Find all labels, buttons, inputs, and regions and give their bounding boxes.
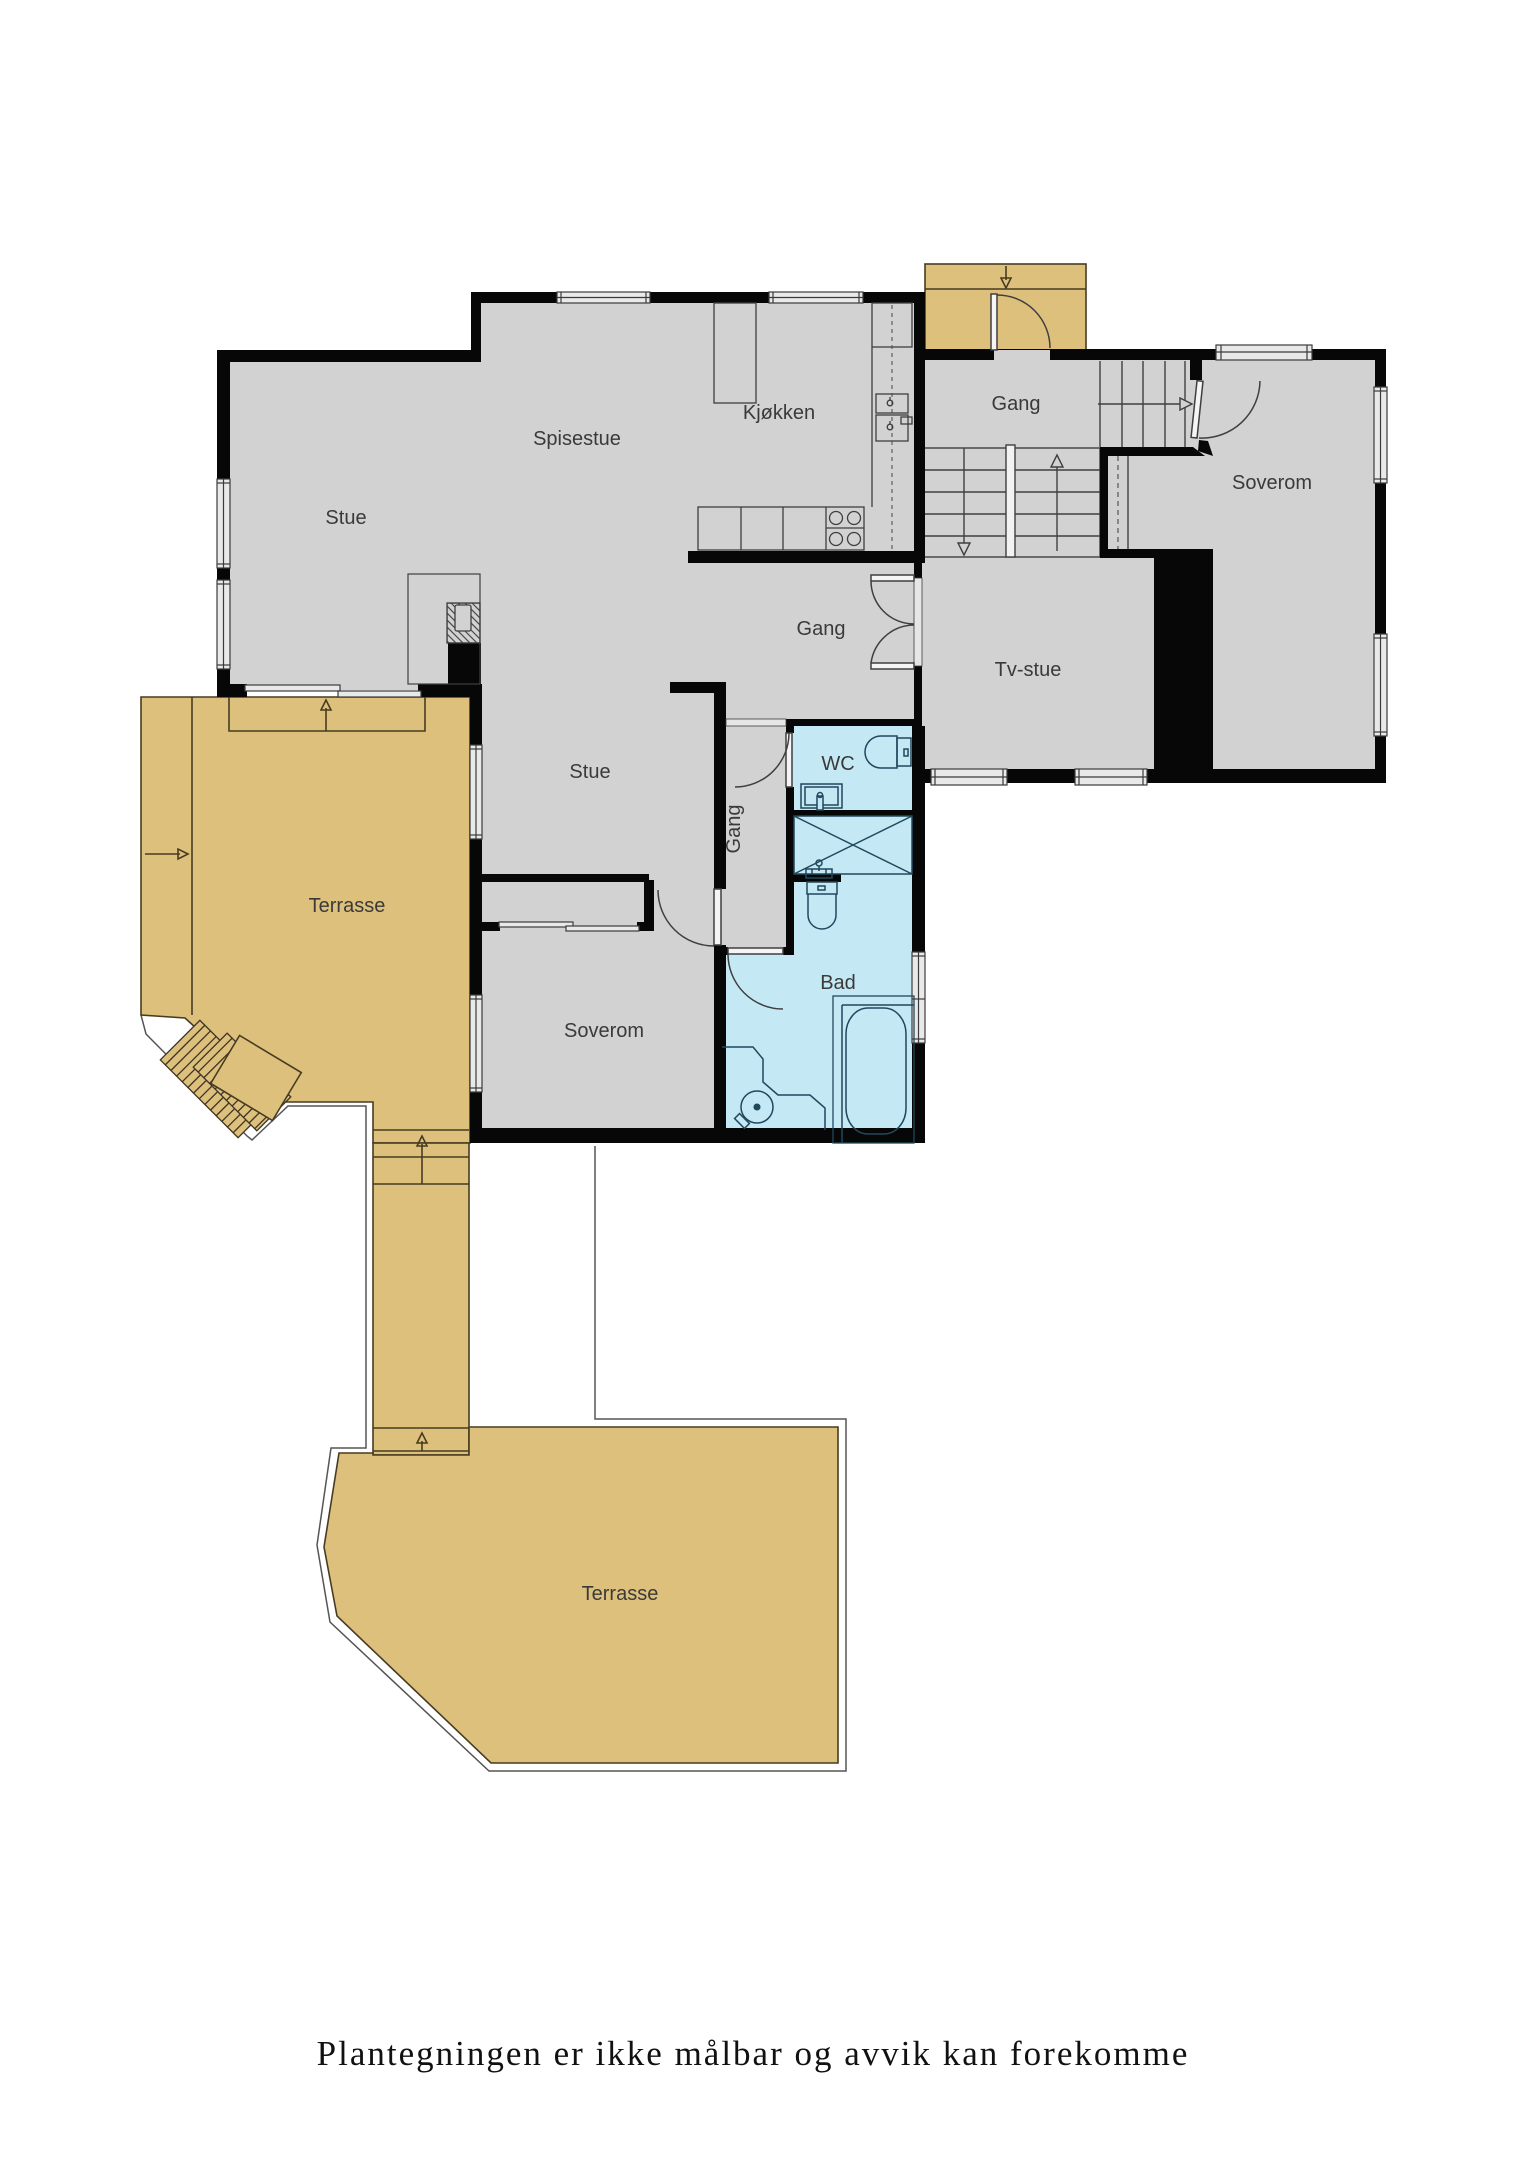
svg-text:Soverom: Soverom bbox=[564, 1020, 644, 1042]
svg-text:Plantegningen er ikke målbar o: Plantegningen er ikke målbar og avvik ka… bbox=[317, 2034, 1190, 2073]
svg-text:Spisestue: Spisestue bbox=[533, 428, 621, 450]
svg-text:Bad: Bad bbox=[820, 972, 856, 994]
svg-text:Stue: Stue bbox=[325, 507, 366, 529]
svg-text:Stue: Stue bbox=[569, 761, 610, 783]
svg-text:Gang: Gang bbox=[723, 805, 745, 854]
svg-text:Gang: Gang bbox=[797, 618, 846, 640]
svg-text:Soverom: Soverom bbox=[1232, 472, 1312, 494]
svg-text:Terrasse: Terrasse bbox=[582, 1583, 659, 1605]
svg-text:Terrasse: Terrasse bbox=[309, 895, 386, 917]
svg-text:Kjøkken: Kjøkken bbox=[743, 402, 815, 424]
svg-text:WC: WC bbox=[821, 753, 854, 775]
svg-text:Gang: Gang bbox=[992, 393, 1041, 415]
svg-text:Tv-stue: Tv-stue bbox=[995, 659, 1062, 681]
